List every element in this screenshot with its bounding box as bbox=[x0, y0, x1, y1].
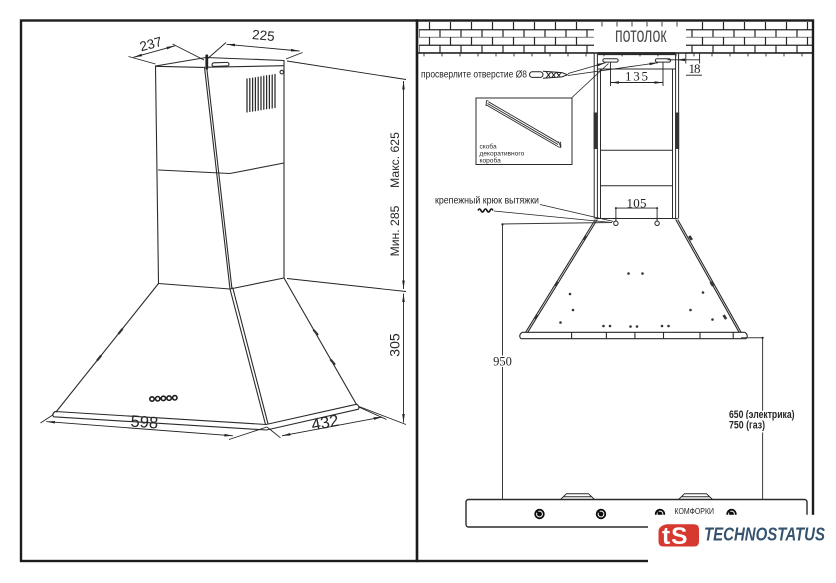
svg-text:декоративного: декоративного bbox=[480, 151, 525, 158]
svg-text:18: 18 bbox=[689, 61, 701, 76]
svg-text:КОМФОРКИ: КОМФОРКИ bbox=[675, 507, 715, 516]
svg-text:скоба: скоба bbox=[480, 143, 498, 151]
svg-text:750 (газ): 750 (газ) bbox=[729, 420, 765, 432]
svg-text:105: 105 bbox=[627, 196, 647, 211]
svg-text:просверлите отверстие Ø8: просверлите отверстие Ø8 bbox=[421, 69, 527, 81]
svg-text:крепежный крюк вытяжки: крепежный крюк вытяжки bbox=[435, 195, 539, 207]
svg-text:потолок: потолок bbox=[615, 24, 667, 47]
svg-text:950: 950 bbox=[493, 355, 512, 369]
svg-text:короба: короба bbox=[480, 157, 502, 165]
svg-text:TECHNOSTATUS: TECHNOSTATUS bbox=[704, 524, 825, 545]
svg-text:Мин. 285: Мин. 285 bbox=[388, 205, 402, 256]
svg-text:305: 305 bbox=[387, 333, 403, 357]
svg-text:Макс. 625: Макс. 625 bbox=[388, 132, 402, 188]
svg-text:598: 598 bbox=[130, 413, 159, 433]
svg-text:tS: tS bbox=[662, 523, 689, 550]
svg-text:225: 225 bbox=[252, 27, 276, 44]
svg-text:135: 135 bbox=[625, 69, 648, 84]
